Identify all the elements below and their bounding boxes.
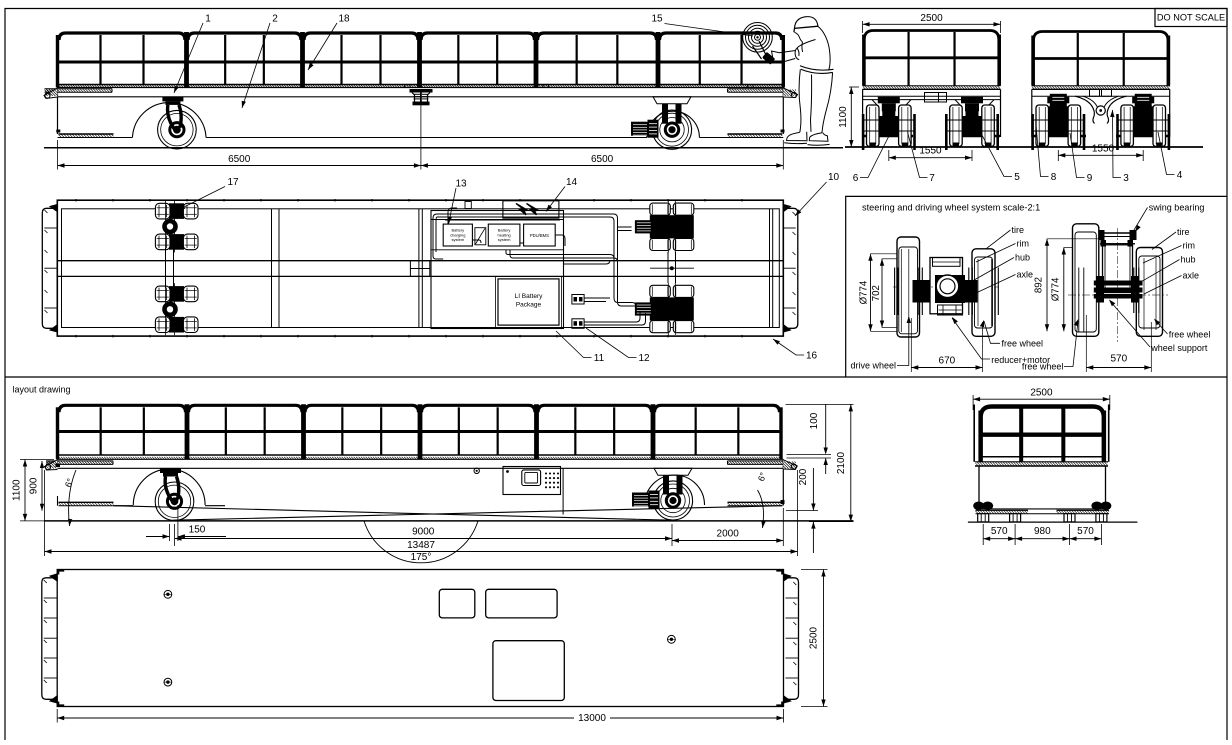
svg-text:16: 16 bbox=[806, 351, 818, 362]
svg-text:14: 14 bbox=[566, 177, 578, 188]
svg-text:11: 11 bbox=[594, 353, 605, 364]
svg-text:900: 900 bbox=[29, 477, 40, 494]
svg-text:Ø774: Ø774 bbox=[1051, 277, 1062, 301]
svg-text:12: 12 bbox=[638, 353, 650, 364]
svg-text:1550: 1550 bbox=[1092, 144, 1115, 155]
svg-text:2500: 2500 bbox=[1030, 388, 1053, 399]
svg-text:4: 4 bbox=[1177, 170, 1183, 181]
svg-text:175°: 175° bbox=[411, 552, 432, 563]
svg-text:8: 8 bbox=[1051, 172, 1057, 183]
svg-text:tire: tire bbox=[1012, 225, 1025, 235]
svg-text:13487: 13487 bbox=[407, 540, 435, 551]
svg-text:1100: 1100 bbox=[12, 479, 23, 501]
svg-text:system: system bbox=[451, 237, 464, 242]
svg-text:7: 7 bbox=[929, 173, 935, 184]
svg-text:layout drawing: layout drawing bbox=[13, 385, 71, 395]
svg-text:Ø774: Ø774 bbox=[858, 280, 869, 304]
svg-text:2500: 2500 bbox=[809, 626, 820, 649]
svg-text:1550: 1550 bbox=[919, 146, 942, 157]
svg-text:DO NOT SCALE: DO NOT SCALE bbox=[1157, 13, 1225, 23]
svg-text:892: 892 bbox=[1034, 277, 1045, 293]
svg-text:3: 3 bbox=[1123, 173, 1129, 184]
svg-text:13: 13 bbox=[455, 179, 467, 190]
svg-text:axle: axle bbox=[1017, 270, 1034, 280]
svg-text:100: 100 bbox=[809, 412, 820, 429]
svg-text:LI Battery: LI Battery bbox=[515, 293, 544, 300]
svg-text:2: 2 bbox=[272, 14, 278, 25]
svg-text:13000: 13000 bbox=[578, 713, 606, 724]
svg-text:free wheel: free wheel bbox=[1002, 338, 1044, 348]
svg-text:5: 5 bbox=[1014, 172, 1020, 183]
svg-text:18: 18 bbox=[338, 14, 350, 25]
svg-text:wheel support: wheel support bbox=[1150, 343, 1208, 353]
svg-text:free wheel: free wheel bbox=[1169, 330, 1211, 340]
svg-text:2100: 2100 bbox=[836, 451, 847, 474]
svg-text:570: 570 bbox=[1110, 354, 1127, 365]
svg-text:2000: 2000 bbox=[717, 529, 740, 540]
svg-text:15: 15 bbox=[651, 14, 663, 25]
svg-text:tire: tire bbox=[1177, 227, 1190, 237]
svg-text:Package: Package bbox=[516, 302, 542, 309]
svg-text:702: 702 bbox=[871, 285, 882, 301]
svg-text:9000: 9000 bbox=[412, 527, 435, 538]
svg-text:570: 570 bbox=[1077, 526, 1094, 537]
svg-text:steering and driving wheel sys: steering and driving wheel system scale-… bbox=[862, 203, 1040, 213]
svg-text:6500: 6500 bbox=[228, 154, 251, 165]
svg-text:1100: 1100 bbox=[838, 106, 849, 128]
svg-text:6500: 6500 bbox=[591, 154, 614, 165]
svg-text:drive wheel: drive wheel bbox=[851, 361, 897, 371]
svg-text:9: 9 bbox=[1087, 173, 1093, 184]
svg-text:10: 10 bbox=[828, 172, 840, 183]
svg-text:1: 1 bbox=[205, 14, 211, 25]
svg-text:hub: hub bbox=[1181, 255, 1196, 265]
svg-text:980: 980 bbox=[1034, 526, 1051, 537]
svg-text:2500: 2500 bbox=[920, 13, 943, 24]
svg-text:hub: hub bbox=[1015, 253, 1030, 263]
svg-text:6: 6 bbox=[853, 173, 859, 184]
svg-text:570: 570 bbox=[991, 526, 1008, 537]
svg-text:system: system bbox=[498, 237, 511, 242]
svg-text:rim: rim bbox=[1183, 241, 1196, 251]
svg-text:PDU/BMS: PDU/BMS bbox=[530, 233, 549, 238]
svg-text:rim: rim bbox=[1017, 239, 1030, 249]
svg-text:swing bearing: swing bearing bbox=[1149, 203, 1205, 213]
svg-text:17: 17 bbox=[227, 177, 239, 188]
svg-text:200: 200 bbox=[798, 468, 809, 485]
svg-text:150: 150 bbox=[189, 525, 206, 536]
svg-text:670: 670 bbox=[939, 356, 956, 367]
svg-text:free wheel: free wheel bbox=[1022, 362, 1064, 372]
svg-text:axle: axle bbox=[1183, 271, 1200, 281]
